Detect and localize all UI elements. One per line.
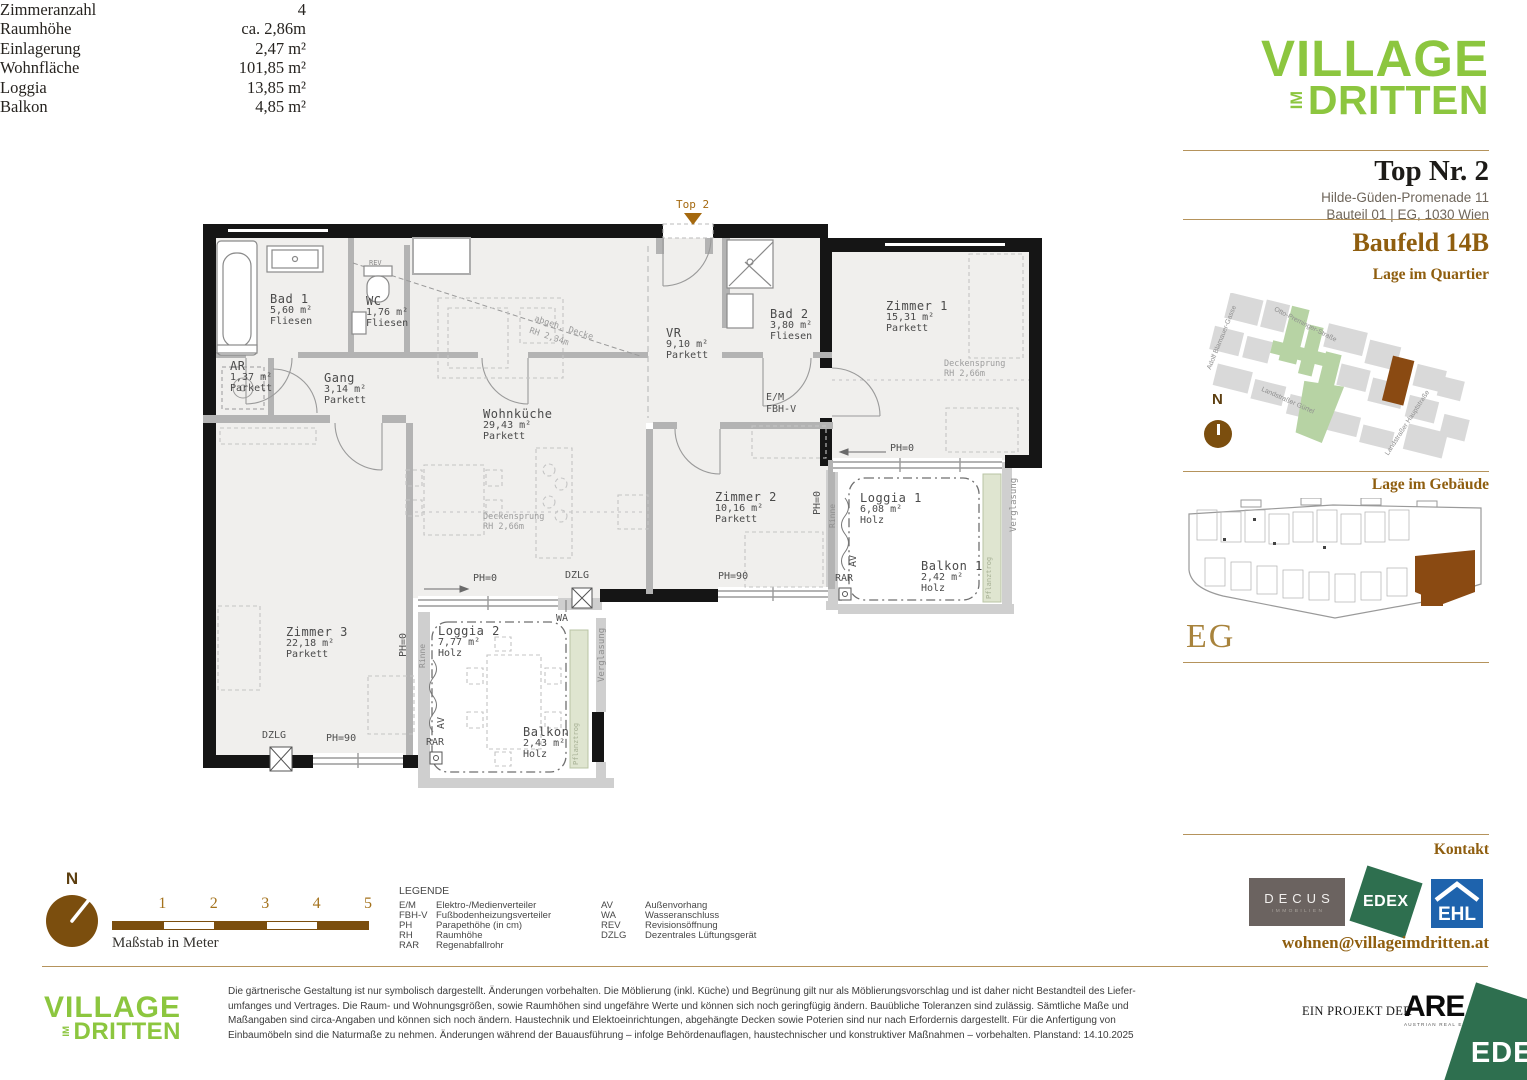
kontakt-heading: Kontakt xyxy=(1183,841,1489,859)
plan-annotation: PH=0 xyxy=(473,573,497,584)
scale-tick: 2 xyxy=(210,895,218,913)
plan-annotation: Top 2 xyxy=(676,198,709,211)
quartier-heading: Lage im Quartier xyxy=(1183,266,1489,284)
divider xyxy=(1183,219,1489,220)
plan-annotation: RH 2,66m xyxy=(483,522,524,532)
disclaimer-line: Maßangaben sind circa-Angaben und können… xyxy=(228,1015,1136,1026)
plan-annotation: AV xyxy=(848,555,859,567)
scale-tick: 5 xyxy=(364,895,372,913)
brand-logo-bottom: DRITTEN xyxy=(1308,82,1489,119)
project-prefix: EIN PROJEKT DER xyxy=(1302,1004,1412,1019)
decus-logo: DECUS IMMOBILIEN xyxy=(1249,878,1345,926)
room-label: Zimmer 322,18 m²Parkett xyxy=(286,626,348,660)
unit-address: Hilde-Güden-Promenade 11 Bauteil 01 | EG… xyxy=(1183,189,1489,223)
footer-logo-im: IM xyxy=(62,1026,72,1037)
quartier-map: N Adolf Blamauer-GasseOtto-Preminger-Str… xyxy=(1188,293,1490,478)
plan-annotation: PH=90 xyxy=(326,733,356,744)
edex-logo-text: EDEX xyxy=(1363,893,1409,911)
footer-logo-bottom: DRITTEN xyxy=(74,1021,182,1043)
room-label: Bad 15,60 m²Fliesen xyxy=(270,293,312,327)
scale-tick: 3 xyxy=(261,895,269,913)
contact-email[interactable]: wohnen@villageimdritten.at xyxy=(1183,933,1489,953)
plan-annotation: FBH-V xyxy=(766,404,796,415)
disclaimer: Die gärtnerische Gestaltung ist nur symb… xyxy=(228,986,1136,1044)
disclaimer-line: Einbaumöbeln sind die Naturmaße zu nehme… xyxy=(228,1030,1136,1041)
divider xyxy=(1183,662,1489,663)
plan-annotation: DZLG xyxy=(262,730,286,741)
ehl-logo: EHL xyxy=(1431,879,1483,928)
room-label: Bad 23,80 m²Fliesen xyxy=(770,308,812,342)
gebaeude-heading: Lage im Gebäude xyxy=(1183,476,1489,494)
map-north-label: N xyxy=(1212,391,1223,408)
plan-annotation: RAR xyxy=(835,573,853,584)
brand-logo: VILLAGE IM DRITTEN xyxy=(1261,36,1489,119)
decus-logo-name: DECUS xyxy=(1259,891,1335,906)
scale-segment xyxy=(163,921,214,930)
decus-logo-sub: IMMOBILIEN xyxy=(1270,909,1325,914)
scale-segment xyxy=(112,921,163,930)
room-label: Zimmer 115,31 m²Parkett xyxy=(886,300,948,334)
plan-annotation: PH=0 xyxy=(812,491,823,515)
address-line-2: Bauteil 01 | EG, 1030 Wien xyxy=(1183,206,1489,223)
scale-bar: Maßstab in Meter 12345 xyxy=(112,893,374,951)
ehl-logo-text: EHL xyxy=(1438,904,1476,925)
room-label: Loggia 27,77 m²Holz xyxy=(438,625,500,659)
plan-annotation: REV xyxy=(369,259,382,267)
room-label: Zimmer 210,16 m²Parkett xyxy=(715,491,777,525)
scale-segment xyxy=(215,921,266,930)
room-label: Balkon2,43 m²Holz xyxy=(523,726,569,760)
plan-annotation: DZLG xyxy=(565,570,589,581)
unit-title: Top Nr. 2 xyxy=(1183,155,1489,188)
footer-edex-text: EDEX xyxy=(1471,1036,1527,1069)
legend-title: LEGENDE xyxy=(399,886,449,896)
map-compass-needle xyxy=(1217,424,1220,435)
plan-annotation: PH=0 xyxy=(890,443,914,454)
footer-logo-top: VILLAGE xyxy=(44,994,181,1021)
disclaimer-line: umfanges und Vertrages. Die Raum- und Wo… xyxy=(228,1001,1136,1012)
room-label: Loggia 16,08 m²Holz xyxy=(860,492,922,526)
scale-segment xyxy=(318,921,369,930)
footer-brand-logo: VILLAGE IM DRITTEN xyxy=(44,994,181,1043)
plan-north-label: N xyxy=(44,869,100,889)
address-line-1: Hilde-Güden-Promenade 11 xyxy=(1183,189,1489,206)
divider xyxy=(1183,150,1489,151)
baufeld-title: Baufeld 14B xyxy=(1183,228,1489,258)
plan-annotation: PH=90 xyxy=(718,571,748,582)
divider xyxy=(1183,471,1489,472)
room-label: AR1,37 m²Parkett xyxy=(230,360,272,394)
scale-caption: Maßstab in Meter xyxy=(112,935,219,952)
room-label: VR9,10 m²Parkett xyxy=(666,327,708,361)
plan-annotation: Pflanztrog xyxy=(985,557,993,599)
legend-row: DZLGDezentrales Lüftungsgerät xyxy=(601,931,756,941)
brand-logo-im: IM xyxy=(1289,91,1305,109)
divider xyxy=(42,966,1488,967)
plan-legend: LEGENDE E/MElektro-/MedienverteilerFBH-V… xyxy=(399,886,449,901)
floor-level-label: EG xyxy=(1186,618,1235,656)
room-label: Wohnküche29,43 m²Parkett xyxy=(483,408,553,442)
room-label: WC1,76 m²Fliesen xyxy=(366,295,408,329)
plan-annotation: WA xyxy=(556,613,568,624)
floor-plan-labels: Bad 15,60 m²FliesenWC1,76 m²FliesenAR1,3… xyxy=(0,0,1160,880)
scale-segment xyxy=(266,921,317,930)
plan-annotation: Deckensprung xyxy=(483,512,544,522)
scale-tick: 4 xyxy=(313,895,321,913)
divider xyxy=(1183,834,1489,835)
plan-annotation: Deckensprung xyxy=(944,359,1005,369)
page: Bad 15,60 m²FliesenWC1,76 m²FliesenAR1,3… xyxy=(0,0,1527,1080)
plan-annotation: RH 2,66m xyxy=(944,369,985,379)
plan-annotation: E/M xyxy=(766,392,784,403)
edex-logo: EDEX xyxy=(1349,865,1422,938)
plan-annotation: Verglasung xyxy=(1009,478,1019,532)
room-label: Balkon 12,42 m²Holz xyxy=(921,560,983,594)
scale-tick: 1 xyxy=(158,895,166,913)
disclaimer-line: Die gärtnerische Gestaltung ist nur symb… xyxy=(228,986,1136,997)
plan-annotation: RAR xyxy=(426,737,444,748)
plan-annotation: Verglasung xyxy=(597,628,607,682)
plan-compass-dial xyxy=(44,889,100,951)
building-plan-svg xyxy=(1183,498,1490,630)
plan-annotation: AV xyxy=(436,717,447,729)
plan-annotation: Pflanztrog xyxy=(572,723,580,765)
room-label: Gang3,14 m²Parkett xyxy=(324,372,366,406)
plan-annotation: Rinne xyxy=(418,644,427,668)
plan-annotation: PH=0 xyxy=(398,633,409,657)
brand-logo-top: VILLAGE xyxy=(1261,36,1489,82)
plan-annotation: Rinne xyxy=(828,504,837,528)
plan-compass: N xyxy=(44,869,100,956)
legend-row: RARRegenabfallrohr xyxy=(399,941,551,951)
quartier-map-svg xyxy=(1188,293,1490,478)
